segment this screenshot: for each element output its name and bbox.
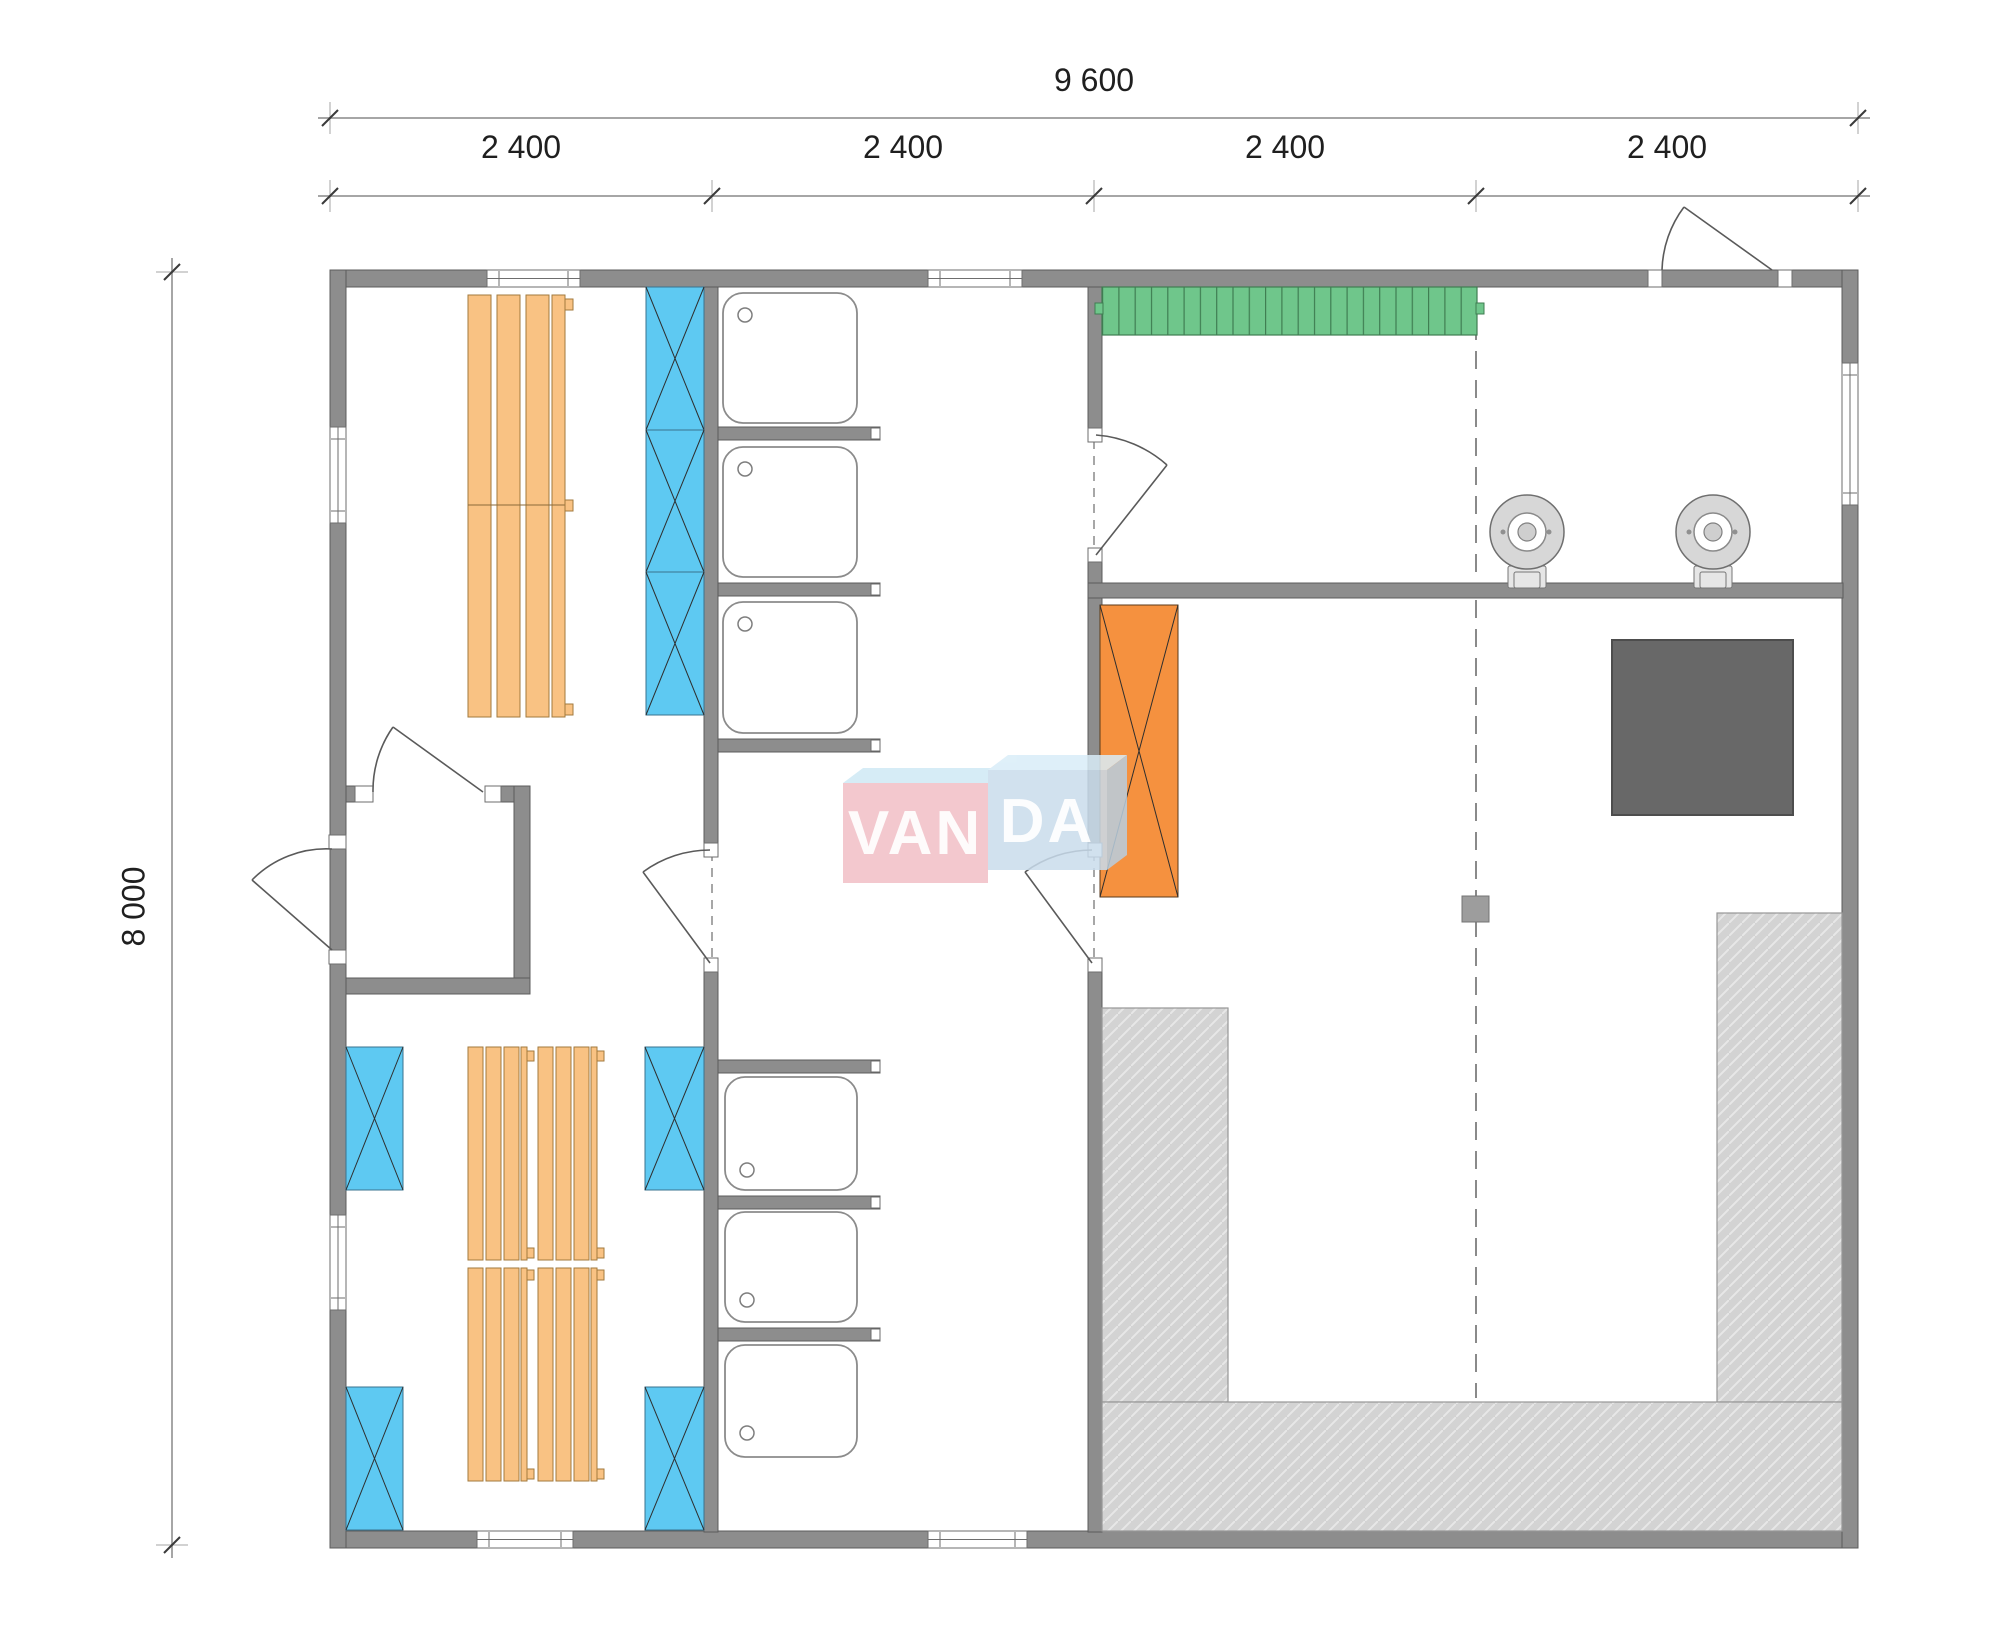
window-icon	[477, 1531, 573, 1548]
window-icon	[1842, 363, 1858, 505]
shower-tray-icon	[725, 1212, 857, 1322]
wood-benches	[468, 295, 604, 1481]
wall-shower-divider	[718, 427, 880, 440]
wall-shower-divider	[718, 1060, 880, 1073]
door-swing-icon-changing-room	[643, 843, 718, 972]
watermark-text-da: DA	[988, 791, 1107, 853]
round-wall-unit-icon	[1490, 495, 1564, 588]
platform-left	[1102, 1008, 1228, 1402]
dim-label-bay-4: 2 400	[1587, 129, 1747, 166]
window-icon	[487, 270, 580, 287]
shower-tray-icon	[723, 293, 857, 423]
shower-tray-icon	[725, 1077, 857, 1190]
dim-label-bay-3: 2 400	[1205, 129, 1365, 166]
blue-panel-icon	[646, 430, 704, 572]
bench-icon-top-room	[468, 295, 573, 717]
dim-label-overall-depth: 8 000	[116, 827, 153, 987]
wall-shower-divider	[718, 1328, 880, 1341]
bench-icon-bottom-room	[468, 1047, 604, 1481]
watermark-pink-top-face	[843, 768, 1008, 783]
blue-panel-icon	[646, 572, 704, 715]
window-icon	[928, 1531, 1027, 1548]
shower-trays	[723, 293, 857, 1457]
watermark-text-van: VAN	[843, 803, 988, 865]
dim-label-bay-1: 2 400	[441, 129, 601, 166]
blue-panel-icon	[646, 287, 704, 430]
wall-partition	[1088, 963, 1102, 1532]
round-wall-unit-icon	[1676, 495, 1750, 588]
platform-right	[1717, 913, 1842, 1402]
window-icon	[928, 270, 1022, 287]
floor-plan-canvas: 9 600 2 400 2 400 2 400 2 400 8 000 VAN …	[0, 0, 2000, 1631]
blue-panel-icon	[645, 1047, 704, 1190]
axis-marker-square	[1462, 896, 1489, 922]
door-swing-icon-vestibule	[355, 727, 501, 802]
window-icon	[330, 427, 346, 523]
dim-label-overall-width: 9 600	[994, 62, 1194, 99]
watermark-blue-side-face	[1107, 755, 1127, 870]
window-icon	[330, 1215, 346, 1310]
wall-vestibule	[514, 786, 530, 994]
dimension-line-bays	[318, 180, 1870, 212]
wall-shower-divider	[718, 739, 880, 752]
blue-panel-icon	[346, 1387, 403, 1530]
shower-tray-icon	[723, 602, 857, 733]
wall-partition	[704, 287, 718, 848]
blue-panel-icon	[645, 1387, 704, 1530]
wall-vestibule	[346, 978, 530, 994]
wall-partition	[704, 963, 718, 1532]
watermark-blue-top-face	[988, 755, 1127, 770]
shower-tray-icon	[723, 447, 857, 577]
door-swing-icon-right-room	[1088, 428, 1167, 562]
blue-panel-icon	[346, 1047, 403, 1190]
shower-tray-icon	[725, 1345, 857, 1457]
green-slatted-bench-icon	[1095, 287, 1484, 335]
wall-shower-divider	[718, 583, 880, 596]
dim-label-bay-2: 2 400	[823, 129, 983, 166]
stove-icon	[1612, 640, 1793, 815]
hatched-platforms	[1102, 913, 1842, 1531]
wall-shower-divider	[718, 1196, 880, 1209]
dimension-line-overall-depth	[156, 258, 188, 1558]
platform-bottom	[1102, 1402, 1842, 1531]
